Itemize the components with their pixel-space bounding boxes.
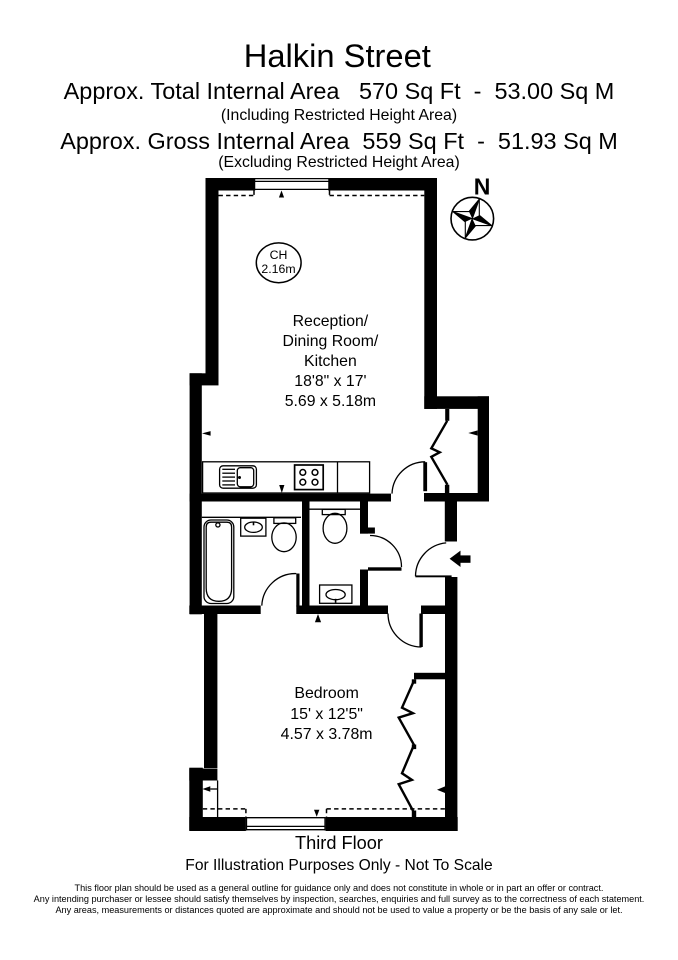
svg-text:2.16m: 2.16m [261, 262, 295, 276]
svg-text:N: N [474, 174, 491, 200]
svg-text:CH: CH [270, 248, 288, 262]
